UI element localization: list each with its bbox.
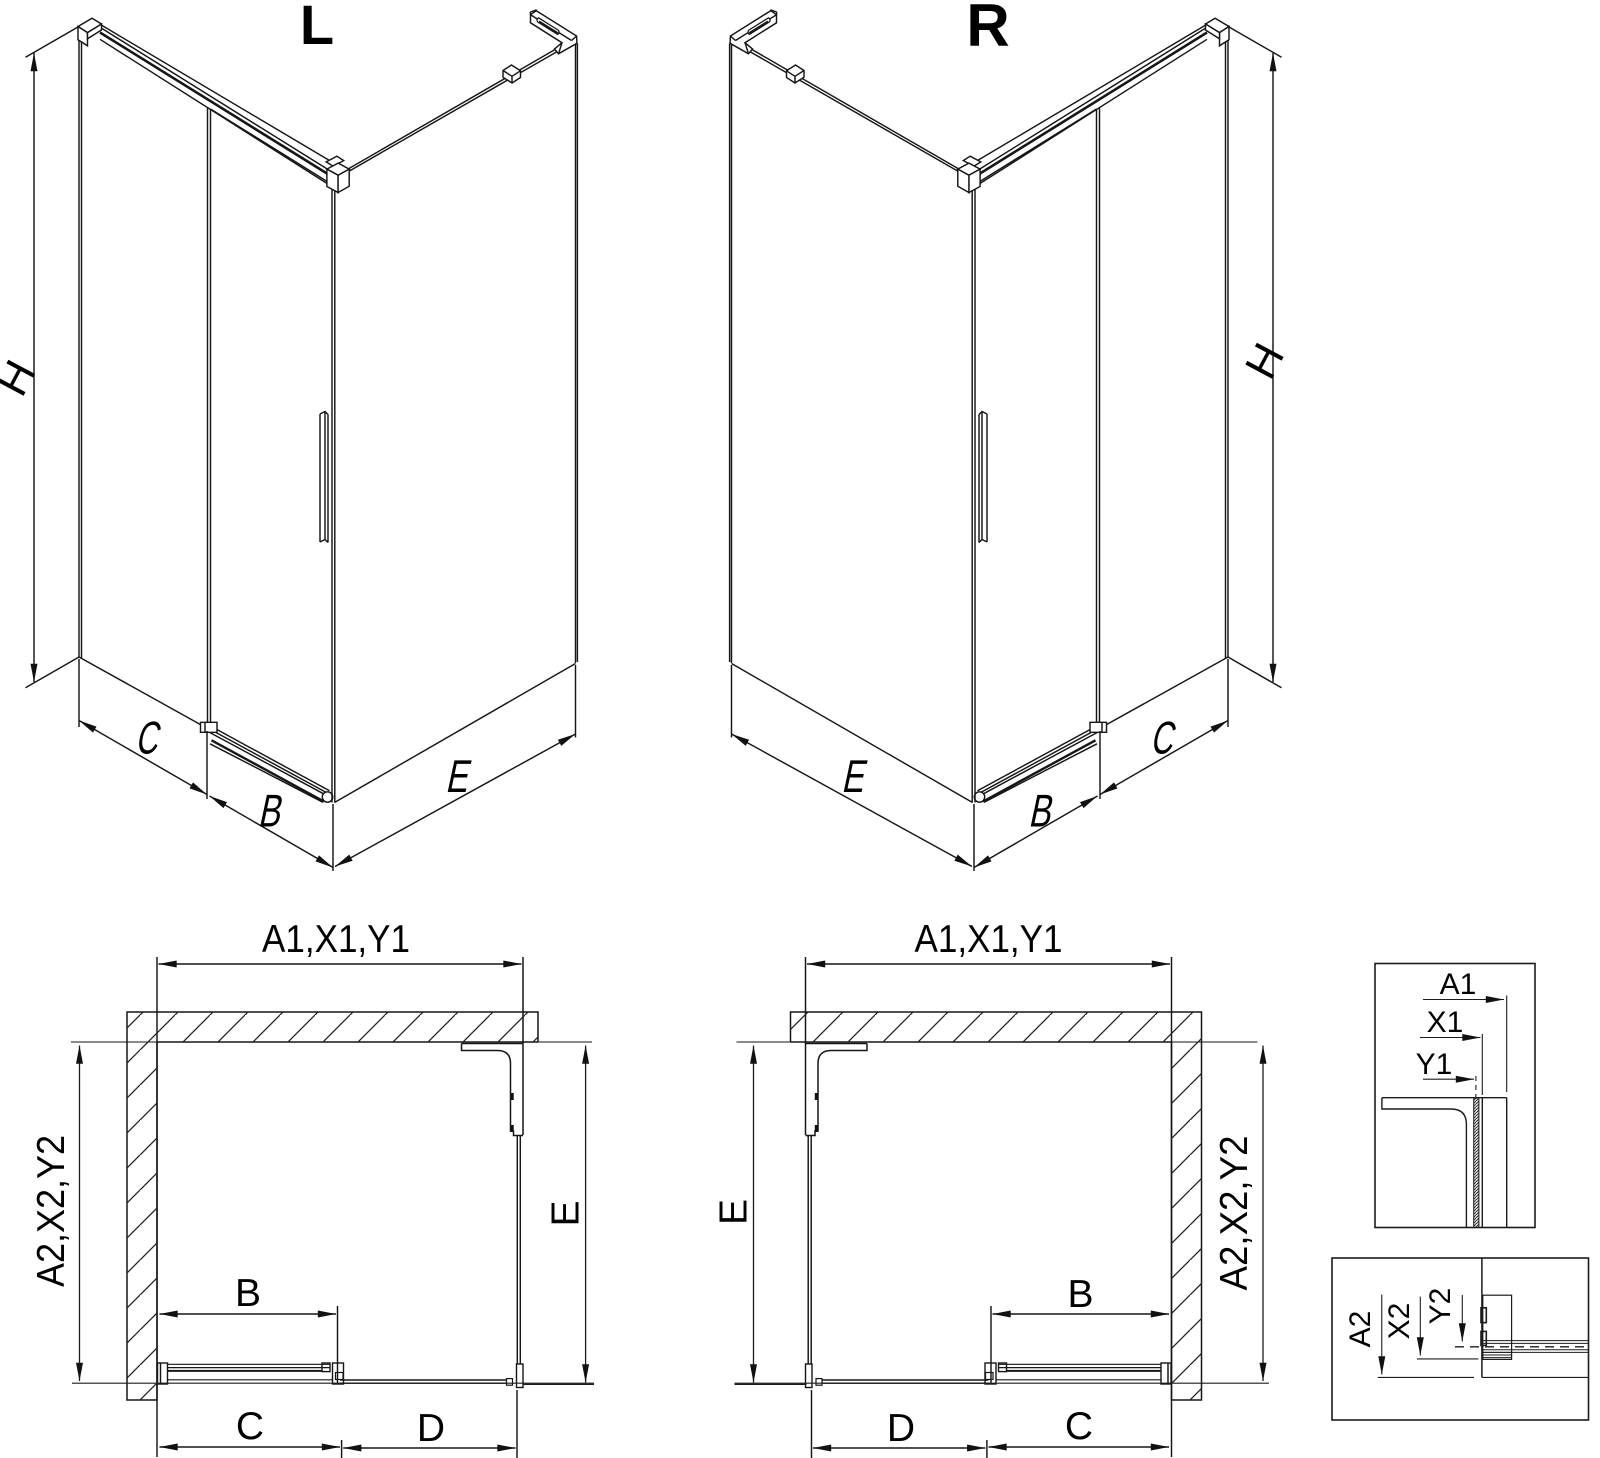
svg-text:L: L xyxy=(300,0,334,56)
svg-text:A1,X1,Y1: A1,X1,Y1 xyxy=(262,918,410,961)
svg-text:X2: X2 xyxy=(1383,1303,1416,1340)
svg-text:A2: A2 xyxy=(1344,1311,1377,1348)
svg-text:X1: X1 xyxy=(1427,1006,1464,1039)
svg-text:E: E xyxy=(545,1200,588,1226)
svg-text:E: E xyxy=(713,1199,756,1225)
svg-text:C: C xyxy=(1065,1405,1093,1448)
svg-text:Y2: Y2 xyxy=(1424,1288,1457,1325)
svg-text:A2,X2,Y2: A2,X2,Y2 xyxy=(30,1135,73,1287)
svg-text:B: B xyxy=(1067,1273,1093,1316)
svg-text:A2,X2,Y2: A2,X2,Y2 xyxy=(1213,1136,1256,1291)
svg-text:Y1: Y1 xyxy=(1416,1048,1453,1081)
svg-text:A1: A1 xyxy=(1440,968,1477,1001)
svg-text:B: B xyxy=(235,1272,261,1315)
svg-text:D: D xyxy=(417,1407,445,1450)
svg-text:C: C xyxy=(236,1405,264,1448)
svg-text:R: R xyxy=(966,0,1009,59)
svg-text:D: D xyxy=(887,1407,915,1450)
svg-text:A1,X1,Y1: A1,X1,Y1 xyxy=(915,918,1063,961)
